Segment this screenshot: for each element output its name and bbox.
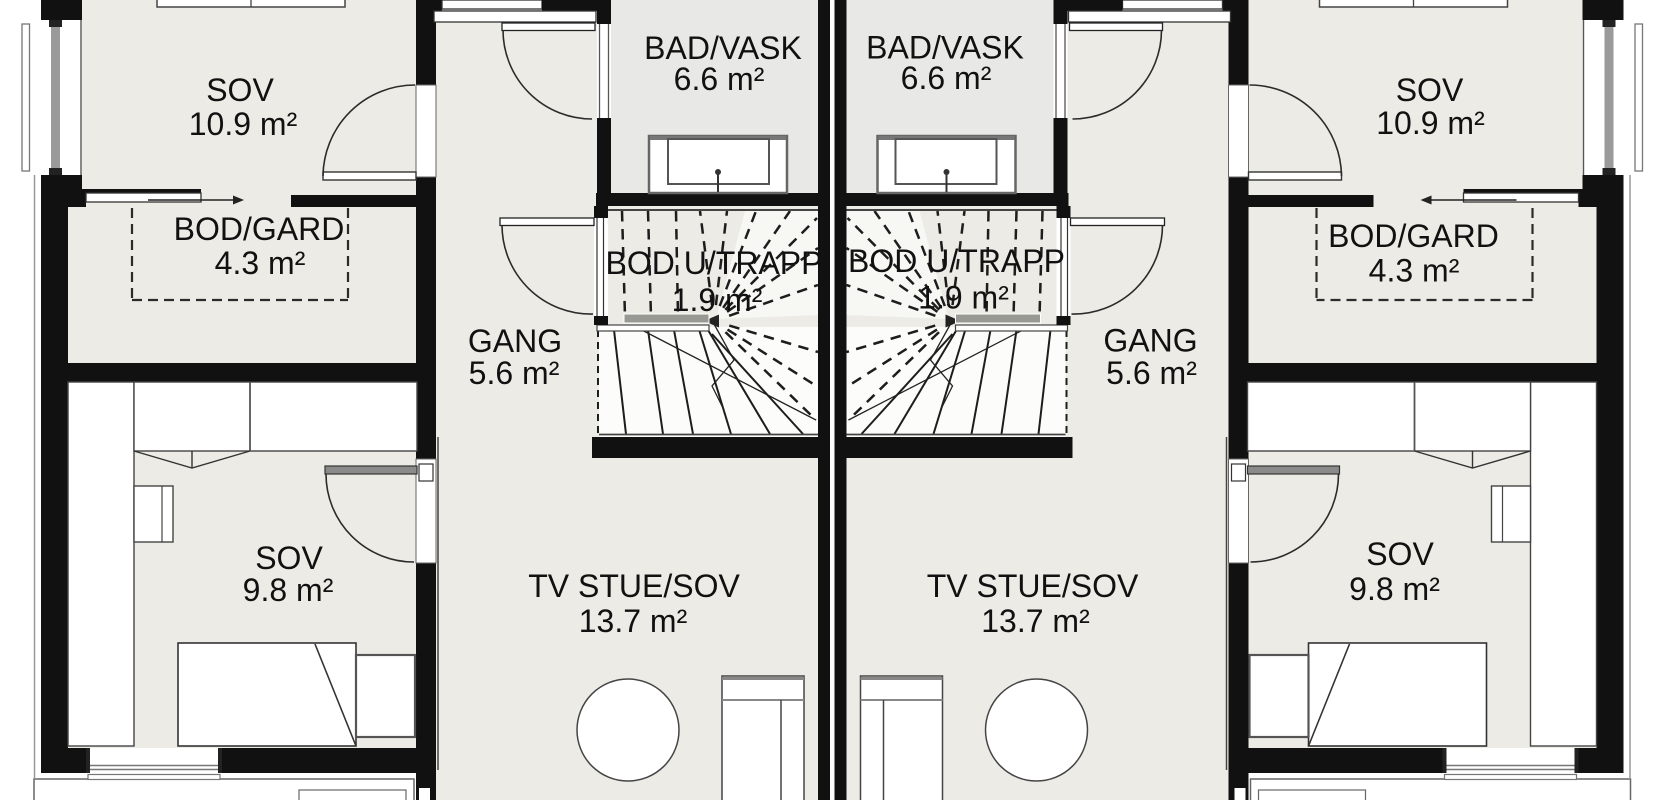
svg-text:4.3 m²: 4.3 m² [215, 245, 306, 281]
svg-text:9.8 m²: 9.8 m² [243, 572, 334, 608]
svg-text:6.6 m²: 6.6 m² [674, 61, 765, 97]
svg-text:9.8 m²: 9.8 m² [1349, 571, 1440, 607]
svg-text:1.9 m²: 1.9 m² [672, 282, 763, 318]
svg-text:BOD/GARD: BOD/GARD [174, 211, 345, 247]
svg-text:TV STUE/SOV: TV STUE/SOV [927, 568, 1139, 604]
svg-text:BOD U/TRAPP: BOD U/TRAPP [848, 243, 1065, 279]
svg-text:GANG: GANG [1103, 323, 1197, 359]
svg-text:13.7 m²: 13.7 m² [981, 603, 1090, 639]
svg-text:6.6 m²: 6.6 m² [901, 60, 992, 96]
svg-text:10.9 m²: 10.9 m² [1376, 105, 1485, 141]
svg-text:BOD/GARD: BOD/GARD [1328, 218, 1499, 254]
svg-text:TV STUE/SOV: TV STUE/SOV [528, 568, 740, 604]
svg-text:GANG: GANG [468, 323, 562, 359]
svg-text:SOV: SOV [1396, 72, 1464, 108]
svg-text:SOV: SOV [255, 540, 323, 576]
svg-text:SOV: SOV [206, 72, 274, 108]
svg-text:5.6 m²: 5.6 m² [469, 355, 560, 391]
svg-text:13.7 m²: 13.7 m² [579, 603, 688, 639]
svg-text:1.9 m²: 1.9 m² [918, 280, 1009, 316]
svg-text:5.6 m²: 5.6 m² [1106, 355, 1197, 391]
svg-text:4.3 m²: 4.3 m² [1369, 253, 1460, 289]
svg-text:10.9 m²: 10.9 m² [189, 106, 298, 142]
svg-text:BOD U/TRAPP: BOD U/TRAPP [606, 245, 823, 281]
svg-text:SOV: SOV [1366, 536, 1434, 572]
